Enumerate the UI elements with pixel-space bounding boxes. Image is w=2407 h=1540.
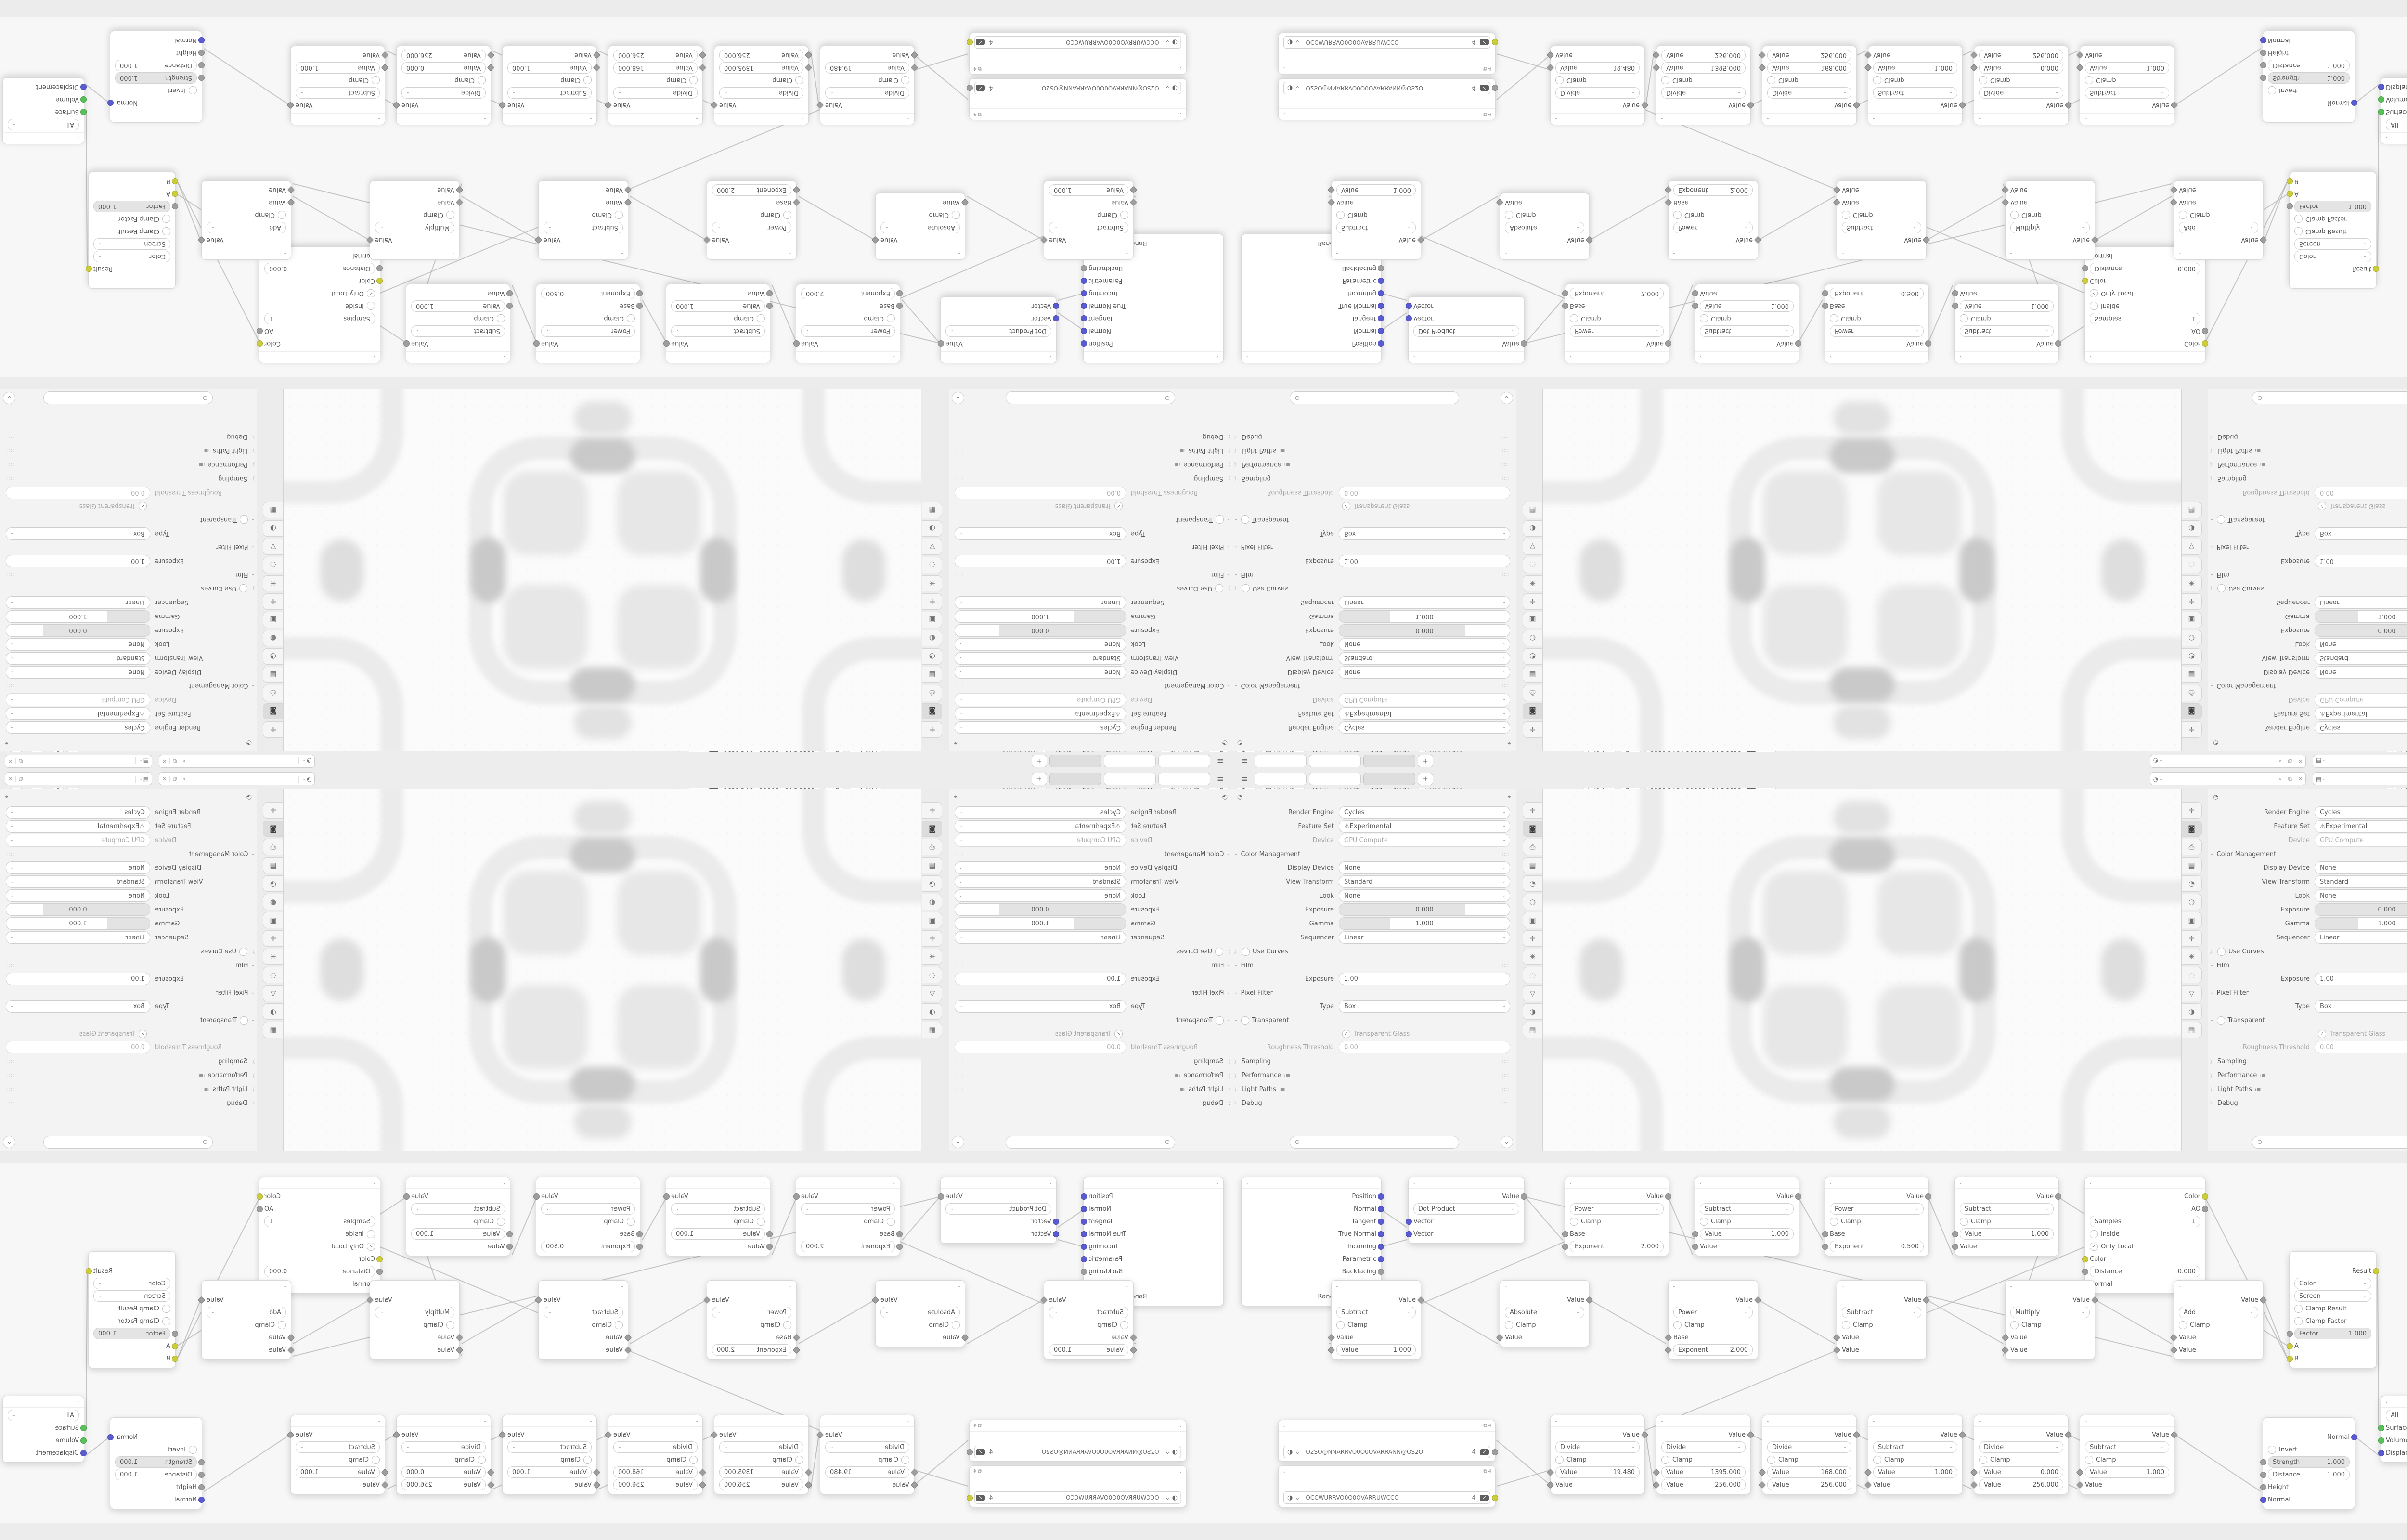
node-header[interactable]: ⌄ xyxy=(714,113,808,125)
properties-tab-modifiers[interactable]: ✛ xyxy=(263,593,283,610)
value-field[interactable]: Value1.000 xyxy=(2085,1466,2169,1478)
node-math-subtract-2[interactable]: ⌄ValueSubtract⌄ClampValue1.000Value xyxy=(406,1177,510,1256)
collapse-icon[interactable]: ⌄ xyxy=(2293,281,2297,285)
properties-tab-texture[interactable]: ▦ xyxy=(2182,502,2202,518)
select-sequencer[interactable]: Linear⌄ xyxy=(2315,931,2407,944)
input-socket[interactable] xyxy=(506,303,513,309)
operation-select[interactable]: Subtract⌄ xyxy=(507,1441,592,1453)
properties-tab-render[interactable]: ◙ xyxy=(1523,821,1542,837)
output-socket[interactable] xyxy=(107,1434,114,1440)
checkbox[interactable] xyxy=(1336,1321,1345,1329)
checkbox[interactable] xyxy=(583,1456,592,1464)
checkbox[interactable] xyxy=(1570,1218,1578,1226)
disclosure-icon[interactable]: ⌄ xyxy=(1227,683,1230,688)
view-layer-selector[interactable]: ▤⌄ ⧉ ✕ xyxy=(5,772,152,785)
input-socket[interactable] xyxy=(636,303,643,309)
input-socket[interactable] xyxy=(1692,1244,1698,1250)
value-field[interactable]: Distance0.000 xyxy=(264,1266,375,1277)
panel-header-performance[interactable]: 〉Performance⁝≡:::: xyxy=(2210,1069,2407,1081)
disclosure-icon[interactable]: ⌄ xyxy=(2210,545,2214,550)
disclosure-icon[interactable]: ⌄ xyxy=(1234,517,1238,522)
value-field[interactable]: Value0.000 xyxy=(401,62,486,74)
value-field[interactable]: Value1.000 xyxy=(296,1466,380,1478)
filter-icon[interactable]: ⁝≡ xyxy=(199,1072,205,1078)
panel-header-transparent[interactable]: ⌄Transparent xyxy=(2210,1014,2407,1027)
node-math-add-1[interactable]: ⌄ValueAdd⌄ClampValueValue xyxy=(201,180,291,260)
checkbox-row[interactable]: Clamp xyxy=(454,1456,486,1464)
checkbox-row[interactable]: Clamp xyxy=(1842,1321,1873,1329)
node-math-power-2[interactable]: ⌄ValuePower⌄ClampBaseExponent0.500 xyxy=(1825,1177,1929,1256)
node-image-texture-1[interactable]: ⌄⧉ 4◑ ⌄O2SO@NNARRVO0O0OVARRANN@OS2O4✓ xyxy=(1278,78,1496,120)
output-socket[interactable] xyxy=(1795,340,1801,346)
input-socket[interactable] xyxy=(2287,203,2293,209)
checkbox-row[interactable]: Clamp xyxy=(1960,1218,1991,1226)
properties-tab-modifiers[interactable]: ✛ xyxy=(923,930,943,947)
properties-tab-texture[interactable]: ▦ xyxy=(263,502,283,518)
node-math-add-1[interactable]: ⌄ValueAdd⌄ClampValueValue xyxy=(201,1280,291,1360)
output-socket[interactable] xyxy=(1665,340,1671,346)
input-socket[interactable] xyxy=(376,1256,383,1262)
properties-tab-scene[interactable]: ◔ xyxy=(2182,648,2202,665)
collapse-icon[interactable]: ⌄ xyxy=(2089,1181,2093,1185)
input-socket[interactable] xyxy=(766,303,773,309)
input-socket[interactable] xyxy=(766,1231,773,1237)
value-gamma[interactable]: 1.000 xyxy=(1339,610,1510,623)
select-display-device[interactable]: None⌄ xyxy=(2315,666,2407,679)
properties-context-icon[interactable]: ◔ xyxy=(246,794,252,801)
properties-tab-particles[interactable]: ✳ xyxy=(2182,575,2202,591)
panel-header-performance[interactable]: 〉Performance⁝≡:::: xyxy=(6,1069,255,1081)
select-sequencer[interactable]: Linear⌄ xyxy=(1339,931,1510,944)
output-socket[interactable] xyxy=(967,1449,973,1455)
checkbox-row[interactable]: Clamp xyxy=(1673,211,1705,219)
properties-tab-object-data[interactable]: ▽ xyxy=(2182,985,2202,1001)
checkbox[interactable] xyxy=(162,215,170,223)
select-view-transform[interactable]: Standard⌄ xyxy=(955,875,1126,888)
value-field[interactable]: Value1395.000 xyxy=(1661,1466,1746,1478)
select-feature-set[interactable]: ⚠ Experimental⌄ xyxy=(955,707,1126,720)
checkbox[interactable]: ✓ xyxy=(1114,1030,1123,1038)
filter-dropdown-button[interactable]: ⌄ xyxy=(3,1136,15,1148)
value-field[interactable]: Value256.000 xyxy=(401,1479,486,1490)
view-layer-name-field[interactable] xyxy=(2329,773,2407,785)
collapse-icon[interactable]: ⌄ xyxy=(168,281,171,285)
node-math-divide-1[interactable]: ⌄ValueDivide⌄ClampValue19.480Value xyxy=(820,46,915,125)
value-gamma[interactable]: 1.000 xyxy=(6,917,150,930)
input-socket[interactable] xyxy=(2378,1425,2384,1431)
node-header[interactable]: ⌄ xyxy=(1656,113,1750,125)
properties-context-icon[interactable]: ◔ xyxy=(246,740,252,747)
scene-selector[interactable]: ◔⌄ ⌖ ⧉ ✕ xyxy=(159,772,315,785)
output-socket[interactable] xyxy=(1925,340,1931,346)
output-socket[interactable] xyxy=(1378,1193,1384,1200)
checkbox-row[interactable]: Clamp xyxy=(1555,77,1587,85)
checkbox[interactable] xyxy=(1842,211,1850,219)
input-socket[interactable] xyxy=(1822,303,1828,309)
input-socket[interactable] xyxy=(2287,178,2293,184)
select-sequencer[interactable]: Linear⌄ xyxy=(6,596,150,609)
checkbox-row[interactable]: ✓Only Local xyxy=(331,1243,375,1251)
collapse-icon[interactable]: ⌄ xyxy=(2084,1419,2088,1424)
properties-tab-physics[interactable]: ◌ xyxy=(923,557,943,573)
value-field[interactable]: Value256.000 xyxy=(719,1479,803,1490)
disclosure-icon[interactable]: 〉 xyxy=(250,476,255,482)
value-field[interactable]: Exponent0.500 xyxy=(541,1241,635,1252)
properties-tab-object-data[interactable]: ▽ xyxy=(1523,985,1542,1001)
value-field[interactable]: Samples1 xyxy=(264,313,375,324)
operation-select[interactable]: Subtract⌄ xyxy=(1049,1307,1128,1318)
operation-select[interactable]: Subtract⌄ xyxy=(544,222,623,233)
input-socket[interactable] xyxy=(2260,75,2266,81)
checkbox[interactable] xyxy=(1873,1456,1881,1464)
input-socket[interactable] xyxy=(198,1484,205,1490)
disclosure-icon[interactable]: 〉 xyxy=(250,448,255,454)
properties-tab-output[interactable]: ⎙ xyxy=(923,685,943,701)
node-header[interactable]: ⌄ xyxy=(1565,1177,1669,1189)
panel-header-light-paths[interactable]: 〉Light Paths⁝≡:::: xyxy=(955,445,1230,457)
node-math-divide-3[interactable]: ⌄ValueDivide⌄ClampValue168.000Value256.0… xyxy=(1762,46,1857,125)
image-editor-canvas[interactable] xyxy=(284,389,921,751)
disclosure-icon[interactable]: 〉 xyxy=(1234,462,1239,468)
checkbox-row[interactable]: Clamp Result xyxy=(2294,1305,2347,1313)
node-header[interactable]: ⌄⧉ 4 xyxy=(1279,1466,1495,1477)
properties-tab-texture[interactable]: ▦ xyxy=(2182,1022,2202,1038)
checkbox-row[interactable]: Clamp xyxy=(1960,315,1991,323)
filter-icon[interactable]: ⁝≡ xyxy=(1284,462,1290,468)
panel-header-pixel-filter[interactable]: ⌄Pixel Filter xyxy=(2210,541,2407,553)
disclosure-icon[interactable]: 〉 xyxy=(2210,949,2214,955)
disclosure-icon[interactable]: ⌄ xyxy=(251,963,255,968)
value-field[interactable]: Value0.000 xyxy=(401,1466,486,1478)
properties-tab-scene[interactable]: ◔ xyxy=(2182,875,2202,892)
operation-select[interactable]: Add⌄ xyxy=(207,1307,286,1318)
node-header[interactable]: ⌄ xyxy=(707,248,796,259)
value-field[interactable]: Value19.480 xyxy=(1555,62,1640,74)
operation-select[interactable]: Add⌄ xyxy=(2179,1307,2258,1318)
checkbox-row[interactable]: Clamp xyxy=(1700,315,1731,323)
node-header[interactable]: ⌄ xyxy=(1565,351,1669,363)
input-socket[interactable] xyxy=(2082,1269,2088,1275)
operation-select[interactable]: Multiply⌄ xyxy=(2010,1307,2090,1318)
checkbox[interactable] xyxy=(1700,1218,1708,1226)
panel-header-pixel-filter[interactable]: ⌄Pixel Filter xyxy=(1234,541,1510,553)
filter-icon[interactable]: ⁝≡ xyxy=(2255,1086,2261,1092)
collapse-icon[interactable]: ⌄ xyxy=(372,1181,376,1185)
value-field[interactable]: Value256.000 xyxy=(1979,50,2063,61)
panel-header-debug[interactable]: 〉Debug:::: xyxy=(955,1097,1230,1109)
input-socket[interactable] xyxy=(2287,1356,2293,1362)
panel-header-performance[interactable]: 〉Performance⁝≡:::: xyxy=(1234,459,1510,471)
select-feature-set[interactable]: ⚠ Experimental⌄ xyxy=(2315,820,2407,833)
value-field[interactable]: Value1395.000 xyxy=(1661,62,1746,74)
output-socket[interactable] xyxy=(2351,100,2357,106)
operation-select[interactable]: All⌄ xyxy=(8,1410,79,1421)
select-view-transform[interactable]: Standard⌄ xyxy=(2315,652,2407,665)
image-icon[interactable]: ◑ ⌄ xyxy=(1162,39,1181,46)
close-icon[interactable]: ✕ xyxy=(5,758,16,764)
value-exposure[interactable]: 0.000 xyxy=(2315,903,2407,916)
value-gamma[interactable]: 1.000 xyxy=(2315,917,2407,930)
image-icon[interactable]: ◑ ⌄ xyxy=(1162,85,1181,92)
input-socket[interactable] xyxy=(80,109,87,115)
output-socket[interactable] xyxy=(938,340,944,346)
output-socket[interactable] xyxy=(1378,303,1384,309)
input-socket[interactable] xyxy=(2260,37,2266,43)
value-field[interactable]: Value256.000 xyxy=(1767,1479,1851,1490)
operation-select[interactable]: Power⌄ xyxy=(801,1203,895,1215)
checkbox[interactable] xyxy=(2090,1230,2098,1238)
input-socket[interactable] xyxy=(2378,1450,2384,1456)
operation-select[interactable]: All⌄ xyxy=(2386,119,2407,130)
node-math-divide-2[interactable]: ⌄ValueDivide⌄ClampValue1395.000Value256.… xyxy=(1656,1415,1751,1494)
properties-tab-material[interactable]: ◑ xyxy=(923,520,943,537)
shader-node-editor[interactable]: ⌄PositionNormalTangentTrue NormalIncomin… xyxy=(0,1163,1232,1523)
disclosure-icon[interactable]: 〉 xyxy=(1234,448,1239,454)
app-menu-icon[interactable]: ≡ xyxy=(1213,774,1228,784)
collapse-icon[interactable]: ⌄ xyxy=(1569,355,1573,360)
node-math-subtract-4[interactable]: ⌄ValueSubtract⌄ClampValueValue xyxy=(1837,180,1927,260)
properties-tab-view-layer[interactable]: ▤ xyxy=(923,667,943,683)
select-sequencer[interactable]: Linear⌄ xyxy=(955,596,1126,609)
node-header[interactable]: ⌄ xyxy=(1955,1177,2058,1189)
value-field[interactable]: Value1.000 xyxy=(1700,300,1794,312)
checkbox-row[interactable]: Clamp xyxy=(592,1321,623,1329)
checkbox[interactable] xyxy=(1960,315,1968,323)
node-header[interactable]: ⌄ xyxy=(876,1281,965,1292)
checkbox[interactable] xyxy=(2268,87,2276,95)
node-header[interactable]: ⌄ xyxy=(941,1177,1056,1189)
operation-select[interactable]: Power⌄ xyxy=(541,1203,635,1215)
disclosure-icon[interactable]: ⌄ xyxy=(2210,1018,2214,1023)
add-workspace-button[interactable]: + xyxy=(1032,755,1047,768)
checkbox[interactable] xyxy=(478,77,486,85)
collapse-icon[interactable]: ⌄ xyxy=(1178,66,1182,71)
properties-tab-texture[interactable]: ▦ xyxy=(263,1022,283,1038)
node-header[interactable]: ⌄ xyxy=(1868,1415,1962,1427)
value-field[interactable]: Value256.000 xyxy=(719,50,803,61)
collapse-icon[interactable]: ⌄ xyxy=(620,252,624,257)
disclosure-icon[interactable]: 〉 xyxy=(1226,1058,1230,1065)
output-socket[interactable] xyxy=(2202,340,2208,346)
properties-tab-object-data[interactable]: ▽ xyxy=(263,985,283,1001)
filter-icon[interactable]: ⁝≡ xyxy=(204,1086,210,1092)
node-header[interactable]: ⌄ xyxy=(796,1177,900,1189)
properties-tab-object-data[interactable]: ▽ xyxy=(923,539,943,555)
select-display-device[interactable]: None⌄ xyxy=(955,666,1126,679)
panel-header-performance[interactable]: 〉Performance⁝≡:::: xyxy=(955,459,1230,471)
value-roughness-threshold[interactable]: 0.00 xyxy=(2315,1041,2407,1053)
panel-header-sampling[interactable]: 〉Sampling:::: xyxy=(6,1055,255,1067)
input-socket[interactable] xyxy=(1053,303,1059,309)
node-header[interactable]: ⌄ xyxy=(2080,113,2174,125)
checkbox-row[interactable]: Clamp xyxy=(772,77,803,85)
panel-header-film[interactable]: ⌄Film:::: xyxy=(1234,959,1510,972)
operation-select[interactable]: Divide⌄ xyxy=(825,1441,909,1453)
value-field[interactable]: Value168.000 xyxy=(613,1466,698,1478)
properties-tab-world[interactable]: ◍ xyxy=(1523,630,1542,646)
disclosure-icon[interactable]: 〉 xyxy=(1226,1072,1230,1078)
input-socket[interactable] xyxy=(1053,1219,1059,1225)
properties-tab-tool[interactable]: ✛ xyxy=(263,802,283,819)
collapse-icon[interactable]: ⌄ xyxy=(2385,136,2389,141)
panel-header-use-curves[interactable]: 〉Use Curves xyxy=(1234,945,1510,958)
value-field[interactable]: Distance1.000 xyxy=(115,1469,197,1480)
operation-select[interactable]: Subtract⌄ xyxy=(1960,1203,2054,1215)
input-socket[interactable] xyxy=(2260,50,2266,56)
disclosure-icon[interactable]: 〉 xyxy=(1234,476,1239,482)
operation-select[interactable]: Divide⌄ xyxy=(1555,87,1640,99)
checkbox-row[interactable]: Inside xyxy=(2090,302,2120,310)
checkbox-row[interactable]: Clamp xyxy=(604,1218,635,1226)
output-socket[interactable] xyxy=(2202,328,2208,334)
checkbox-row[interactable]: Clamp Factor xyxy=(2294,1317,2347,1325)
node-material-output[interactable]: ⌄All⌄SurfaceVolumeDisplacement xyxy=(2,1396,84,1463)
checkbox[interactable] xyxy=(689,77,698,85)
node-header[interactable]: ⌄ xyxy=(2174,248,2263,259)
node-header[interactable]: ⌄⧉ 4 xyxy=(1279,1420,1495,1432)
output-socket[interactable] xyxy=(2373,266,2379,272)
node-header[interactable]: ⌄ xyxy=(1409,351,1524,363)
input-socket[interactable] xyxy=(2260,1497,2266,1503)
output-socket[interactable] xyxy=(1378,265,1384,271)
select-render-engine[interactable]: Cycles⌄ xyxy=(1339,806,1510,819)
disclosure-icon[interactable]: ⌄ xyxy=(2210,572,2214,577)
checkbox[interactable] xyxy=(1661,77,1669,85)
value-field[interactable]: Value1.000 xyxy=(1960,1228,2054,1240)
properties-tab-object-data[interactable]: ▽ xyxy=(923,985,943,1001)
checkbox[interactable] xyxy=(1830,1218,1838,1226)
checkbox[interactable]: ✓ xyxy=(2318,1030,2326,1038)
input-socket[interactable] xyxy=(172,1331,178,1337)
checkbox-row[interactable]: Clamp xyxy=(878,77,909,85)
node-header[interactable]: ⌄ xyxy=(1332,248,1421,259)
value-field[interactable]: Value1.000 xyxy=(671,1228,765,1240)
node-math-divide-3[interactable]: ⌄ValueDivide⌄ClampValue168.000Value256.0… xyxy=(608,1415,703,1494)
checkbox-row[interactable]: Inside xyxy=(345,302,375,310)
operation-select[interactable]: Subtract⌄ xyxy=(507,87,592,99)
disclosure-icon[interactable]: 〉 xyxy=(1226,476,1230,482)
properties-tab-object[interactable]: ▣ xyxy=(1523,912,1542,928)
checkbox[interactable] xyxy=(278,211,286,219)
operation-select[interactable]: Power⌄ xyxy=(541,325,635,337)
collapse-icon[interactable]: ⌄ xyxy=(2178,252,2182,257)
close-icon[interactable]: ✕ xyxy=(5,776,16,782)
input-socket[interactable] xyxy=(766,290,773,296)
panel-header-pixel-filter[interactable]: ⌄Pixel Filter xyxy=(2210,987,2407,999)
node-header[interactable]: ⌄ xyxy=(539,1281,628,1292)
output-socket[interactable] xyxy=(1081,1219,1087,1225)
disclosure-icon[interactable]: 〉 xyxy=(250,1072,255,1078)
collapse-icon[interactable]: ⌄ xyxy=(632,1181,636,1185)
node-header[interactable]: ⌄ xyxy=(1837,1281,1926,1292)
node-header[interactable]: ⌄ xyxy=(2263,111,2355,122)
node-material-output[interactable]: ⌄All⌄SurfaceVolumeDisplacement xyxy=(2381,1396,2407,1463)
value-exposure[interactable]: 0.000 xyxy=(955,624,1126,637)
input-socket[interactable] xyxy=(172,1356,178,1362)
output-socket[interactable] xyxy=(1378,1244,1384,1250)
image-editor-canvas[interactable] xyxy=(1543,389,2181,751)
checkbox-row[interactable]: Clamp xyxy=(929,211,960,219)
properties-tab-material[interactable]: ◑ xyxy=(923,1003,943,1020)
collapse-icon[interactable]: ⌄ xyxy=(620,1284,624,1289)
node-math-divide-4[interactable]: ⌄ValueDivide⌄ClampValue0.000Value256.000 xyxy=(1974,46,2069,125)
output-socket[interactable] xyxy=(1492,39,1498,45)
input-socket[interactable] xyxy=(1406,1219,1412,1225)
checkbox-row[interactable]: Clamp xyxy=(423,211,454,219)
value-field[interactable]: Value19.480 xyxy=(825,1466,909,1478)
panel-header-debug[interactable]: 〉Debug:::: xyxy=(2210,431,2407,443)
workspace-tab[interactable] xyxy=(1158,773,1210,785)
node-header[interactable]: ⌄⧉ 4 xyxy=(970,108,1186,120)
disclosure-icon[interactable]: ⌄ xyxy=(1234,1018,1238,1023)
operation-select[interactable]: Subtract⌄ xyxy=(1842,222,1921,233)
panel-header-pixel-filter[interactable]: ⌄Pixel Filter xyxy=(6,987,255,999)
app-menu-icon[interactable]: ≡ xyxy=(1237,774,1252,784)
node-header[interactable]: ⌄ xyxy=(1500,248,1589,259)
copy-icon[interactable]: ⧉ xyxy=(16,758,26,765)
output-socket[interactable] xyxy=(663,340,670,346)
operation-select[interactable]: Dot Product⌄ xyxy=(1413,1203,1519,1215)
select-render-engine[interactable]: Cycles⌄ xyxy=(1339,721,1510,734)
node-header[interactable]: ⌄ xyxy=(1084,1177,1223,1189)
node-math-subtract-1[interactable]: ⌄ValueSubtract⌄ClampValue1.000Value xyxy=(666,1177,770,1256)
panel-header-sampling[interactable]: 〉Sampling:::: xyxy=(955,1055,1230,1067)
close-icon[interactable]: ✕ xyxy=(159,758,170,764)
filter-dropdown-button[interactable]: ⌄ xyxy=(952,392,964,404)
value-field[interactable]: Value256.000 xyxy=(1661,1479,1746,1490)
node-math-subtract-4[interactable]: ⌄ValueSubtract⌄ClampValueValue xyxy=(538,180,628,260)
output-socket[interactable] xyxy=(663,1193,670,1200)
disclosure-icon[interactable]: ⌄ xyxy=(1234,683,1238,688)
checkbox-row[interactable]: Clamp xyxy=(1979,1456,2010,1464)
checkbox-row[interactable]: Clamp xyxy=(1767,1456,1799,1464)
value-field[interactable]: Factor1.000 xyxy=(93,201,170,212)
node-header[interactable]: ⌄ xyxy=(2381,132,2407,144)
node-header[interactable]: ⌄ xyxy=(2080,1415,2174,1427)
input-socket[interactable] xyxy=(506,290,513,296)
disclosure-icon[interactable]: 〉 xyxy=(250,1058,255,1065)
checkbox[interactable] xyxy=(901,1456,909,1464)
value-field[interactable]: Value0.000 xyxy=(1979,62,2063,74)
input-socket[interactable] xyxy=(1952,1231,1958,1237)
value-field[interactable]: Factor1.000 xyxy=(2294,201,2371,212)
panel-header-color-management[interactable]: ⌄Color Management:::: xyxy=(1234,680,1510,692)
fake-user-shield-icon[interactable]: ✓ xyxy=(1480,1495,1489,1501)
disclosure-icon[interactable]: ⌄ xyxy=(1234,852,1238,857)
fake-user-shield-icon[interactable]: ✓ xyxy=(976,85,985,91)
checkbox[interactable] xyxy=(1215,585,1223,593)
node-math-subtract-4[interactable]: ⌄ValueSubtract⌄ClampValueValue xyxy=(538,1280,628,1360)
disclosure-icon[interactable]: ⌄ xyxy=(251,683,255,688)
output-socket[interactable] xyxy=(967,85,973,91)
disclosure-icon[interactable]: 〉 xyxy=(1234,1072,1239,1078)
operation-select[interactable]: Divide⌄ xyxy=(401,1441,486,1453)
select-device[interactable]: GPU Compute⌄ xyxy=(955,834,1126,847)
output-socket[interactable] xyxy=(793,340,800,346)
select-device[interactable]: GPU Compute⌄ xyxy=(1339,693,1510,706)
collapse-icon[interactable]: ⌄ xyxy=(957,252,961,257)
disclosure-icon[interactable]: 〉 xyxy=(250,462,255,468)
checkbox[interactable] xyxy=(627,1218,635,1226)
view-layer-icon[interactable]: ▤⌄ xyxy=(135,758,152,765)
properties-tab-scene[interactable]: ◔ xyxy=(263,648,283,665)
output-socket[interactable] xyxy=(2055,1193,2061,1200)
properties-tab-render[interactable]: ◙ xyxy=(1523,703,1542,719)
node-header[interactable]: ⌄ xyxy=(714,1415,808,1427)
collapse-icon[interactable]: ⌄ xyxy=(1699,355,1703,360)
input-socket[interactable] xyxy=(2378,84,2384,90)
operation-select[interactable]: Absolute⌄ xyxy=(1505,222,1584,233)
